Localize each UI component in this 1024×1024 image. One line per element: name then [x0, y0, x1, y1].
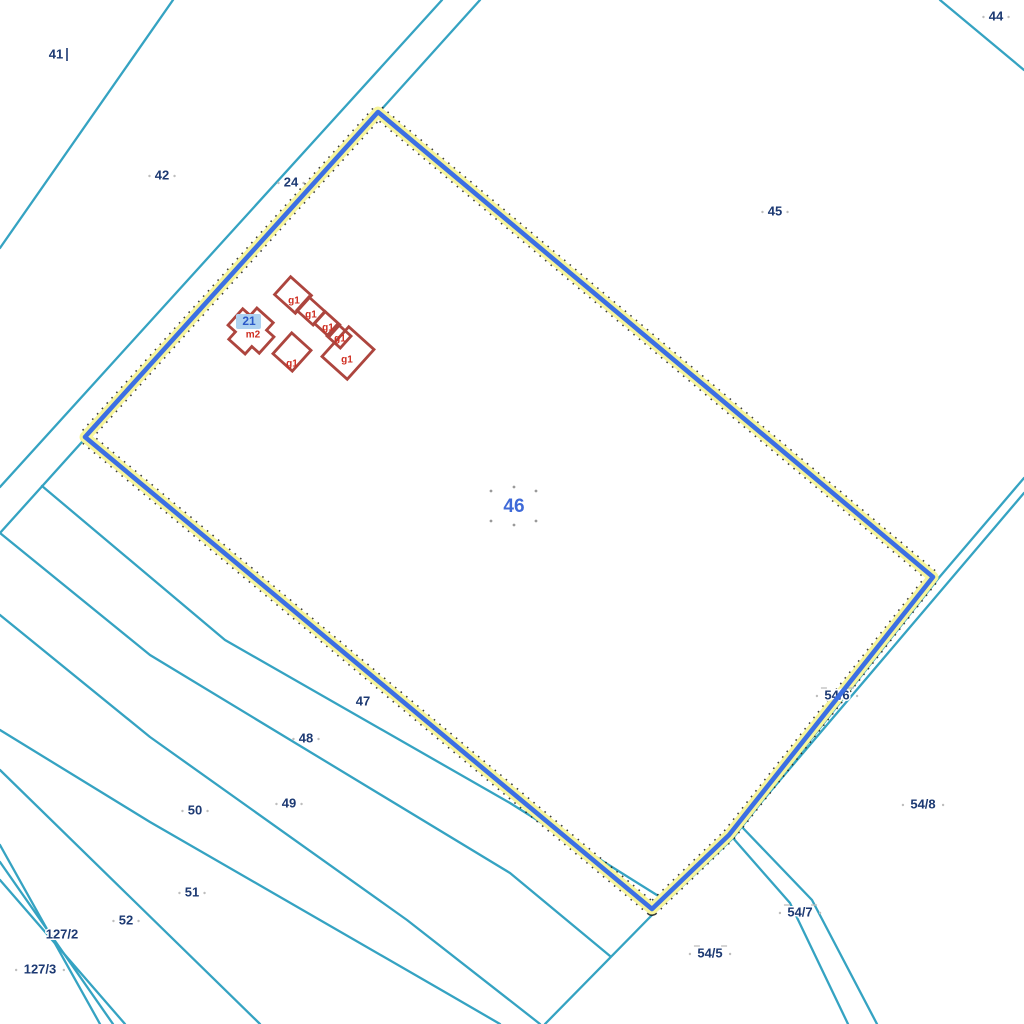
parcel-label-54-8[interactable]: 54/8	[910, 796, 935, 811]
parcel-label-51[interactable]: 51	[185, 884, 199, 899]
building-use-label: g1	[341, 355, 353, 366]
label-tick-dot	[15, 969, 17, 971]
building-use-label: m2	[246, 330, 261, 341]
label-tick-dot	[786, 211, 788, 213]
parcel-label-47[interactable]: 47	[356, 693, 370, 708]
label-tick-dot	[277, 182, 279, 184]
label-tick-dot	[317, 738, 319, 740]
building-use-label: g1	[288, 296, 300, 307]
label-tick-dot	[729, 953, 731, 955]
label-tick-dot	[761, 211, 763, 213]
building-use-label: g1	[305, 310, 317, 321]
parcel-46-label-handle-dot	[535, 520, 538, 523]
building-use-label: g1	[334, 334, 346, 345]
label-tick-dot	[148, 175, 150, 177]
map-viewport: 54/6g1g1g1g1g1g1m22141422444454748495051…	[0, 0, 1024, 1024]
parcel-label-42[interactable]: 42	[155, 167, 169, 182]
parcel-label-127-3[interactable]: 127/3	[24, 961, 57, 976]
label-tick-dot	[942, 804, 944, 806]
label-tick-dot	[689, 953, 691, 955]
label-tick-dot	[1007, 16, 1009, 18]
selected-building-label-21[interactable]: 21	[236, 314, 261, 329]
parcel-label-52[interactable]: 52	[119, 912, 133, 927]
parcel-label-41[interactable]: 41	[49, 46, 63, 61]
parcel-label-45[interactable]: 45	[768, 203, 782, 218]
parcel-label-54-7[interactable]: 54/7	[787, 904, 812, 919]
label-tick-dot	[302, 182, 304, 184]
parcel-46-label-handle-dot	[513, 524, 516, 527]
parcel-label-54-5[interactable]: 54/5	[697, 945, 722, 960]
parcel-label-49[interactable]: 49	[282, 795, 296, 810]
label-tick-dot	[63, 969, 65, 971]
parcel-label-50[interactable]: 50	[188, 802, 202, 817]
parcel-label-24[interactable]: 24	[284, 174, 299, 189]
building-use-label: g1	[286, 359, 298, 370]
parcel-label-48[interactable]: 48	[299, 730, 313, 745]
building-use-label: g1	[322, 323, 334, 334]
label-tick-dot	[203, 892, 205, 894]
label-tick-dot	[292, 738, 294, 740]
parcel-46-label-handle-dot	[490, 520, 493, 523]
label-tick-dot	[982, 16, 984, 18]
parcel-46-label-handle-dot	[535, 490, 538, 493]
label-tick-dot	[300, 803, 302, 805]
label-tick-dot	[173, 175, 175, 177]
parcel-46-label-handle-dot	[490, 490, 493, 493]
parcel-label-127-2[interactable]: 127/2	[46, 926, 79, 941]
label-tick-dot	[902, 804, 904, 806]
label-tick-dot	[819, 912, 821, 914]
label-tick-dot	[779, 912, 781, 914]
map-canvas[interactable]: 54/6g1g1g1g1g1g1m22141422444454748495051…	[0, 0, 1024, 1024]
parcel-label-44[interactable]: 44	[989, 8, 1004, 23]
parcel-46-label-handle-dot	[513, 486, 516, 489]
label-tick-dot	[137, 920, 139, 922]
label-tick-dot	[181, 810, 183, 812]
label-tick-dot	[275, 803, 277, 805]
label-tick-dot	[816, 695, 818, 697]
label-tick-dot	[178, 892, 180, 894]
parcel-46-number-label[interactable]: 46	[503, 496, 524, 517]
label-tick-dot	[856, 695, 858, 697]
label-tick-dot	[112, 920, 114, 922]
selected-building-number[interactable]: 21	[242, 314, 256, 328]
label-tick-dot	[206, 810, 208, 812]
